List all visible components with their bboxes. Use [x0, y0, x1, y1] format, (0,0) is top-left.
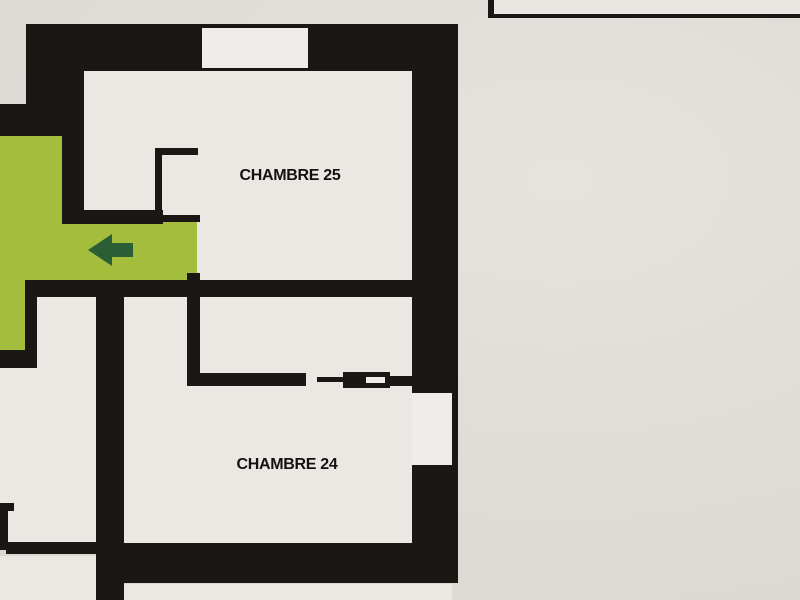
wall-chambre-24-bottom: [124, 543, 455, 583]
room-label-chambre-24: CHAMBRE 24: [157, 456, 417, 474]
wall-lower-column-bottom: [0, 350, 37, 368]
room-floor-chambre-24: [124, 297, 412, 543]
wall-chambre-24-interior-horizontal: [187, 373, 306, 386]
door-symbol-leaf-line: [317, 377, 345, 382]
wall-mid-vertical-thick: [96, 293, 124, 600]
window-opening-right: [412, 393, 452, 465]
adjacent-sheet-frame-corner: [488, 0, 800, 18]
room-floor-below-left: [0, 556, 96, 600]
wall-bottom-left-thin: [6, 542, 96, 554]
wall-left-jog: [0, 104, 84, 136]
wall-door-recess-vertical: [155, 148, 162, 224]
wall-chambre-24-left-vertical: [187, 273, 200, 385]
door-symbol-slit: [366, 377, 385, 383]
corridor-green-upper-column: [0, 134, 62, 222]
wall-horizontal-mid: [25, 280, 412, 297]
door-symbol-connector: [388, 376, 412, 386]
corridor-green-lower-column: [0, 281, 25, 352]
wall-door-recess-top-stub: [155, 148, 198, 155]
wall-door-recess-bottom-stub: [162, 215, 200, 222]
wall-left-upper: [26, 24, 84, 108]
corridor-direction-arrow-left-icon: [86, 232, 134, 268]
floor-plan-photo: CHAMBRE 25 CHAMBRE 24: [0, 0, 800, 600]
room-label-chambre-25: CHAMBRE 25: [160, 167, 420, 185]
room-floor-below-chambre-24: [124, 584, 452, 600]
window-opening-top: [202, 28, 308, 68]
wall-right: [412, 24, 458, 583]
wall-left-edge-stub: [0, 503, 14, 511]
wall-chambre-25-bottom-bar: [78, 210, 163, 224]
